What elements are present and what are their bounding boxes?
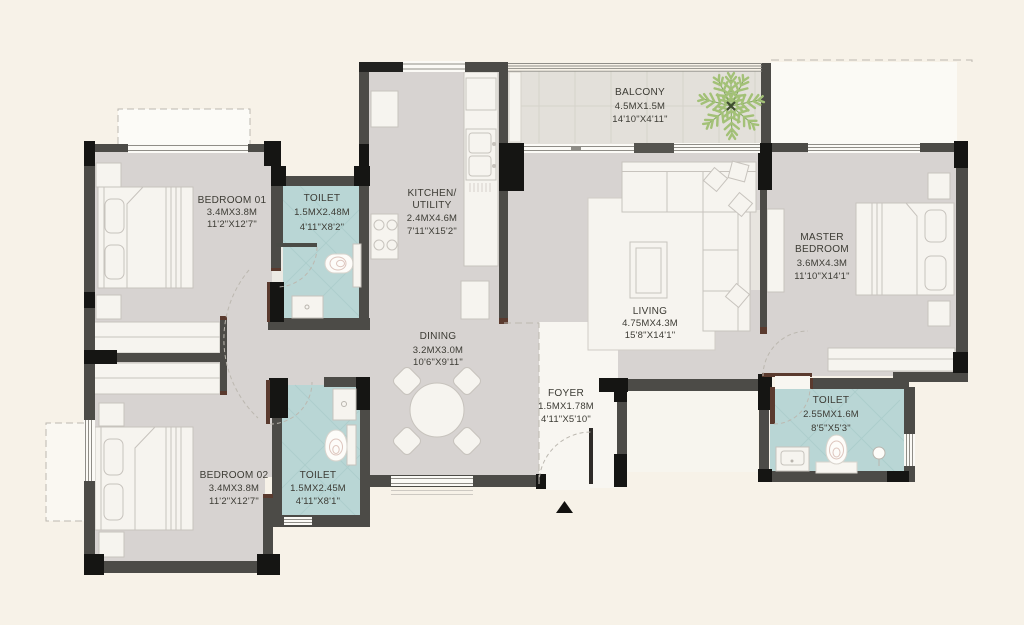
svg-text:4'11"X8'1": 4'11"X8'1" [296, 496, 340, 507]
svg-text:DINING: DINING [420, 331, 457, 342]
svg-text:14'10"X4'11": 14'10"X4'11" [612, 114, 667, 125]
svg-text:LIVING: LIVING [633, 306, 668, 317]
svg-text:1.5MX2.48M: 1.5MX2.48M [294, 207, 350, 218]
svg-text:BEDROOM 02: BEDROOM 02 [200, 470, 269, 481]
svg-text:1.5MX2.45M: 1.5MX2.45M [290, 483, 346, 494]
svg-text:11'2"X12'7": 11'2"X12'7" [209, 496, 259, 507]
svg-text:7'11"X15'2": 7'11"X15'2" [407, 226, 457, 237]
svg-text:10'6"X9'11": 10'6"X9'11" [413, 357, 463, 368]
svg-text:2.4MX4.6M: 2.4MX4.6M [407, 213, 457, 224]
svg-text:4'11"X5'10": 4'11"X5'10" [541, 414, 591, 425]
svg-text:3.4MX3.8M: 3.4MX3.8M [207, 207, 257, 218]
svg-text:15'8"X14'1": 15'8"X14'1" [625, 330, 676, 341]
svg-text:TOILET: TOILET [813, 395, 850, 406]
svg-text:BEDROOM: BEDROOM [795, 244, 849, 255]
svg-text:11'10"X14'1": 11'10"X14'1" [794, 271, 849, 282]
svg-text:3.4MX3.8M: 3.4MX3.8M [209, 483, 259, 494]
svg-text:TOILET: TOILET [300, 470, 337, 481]
svg-text:1.5MX1.78M: 1.5MX1.78M [538, 401, 594, 412]
svg-text:UTILITY: UTILITY [412, 200, 451, 211]
svg-text:KITCHEN/: KITCHEN/ [407, 188, 456, 199]
svg-text:8'5"X5'3": 8'5"X5'3" [811, 423, 851, 434]
svg-text:11'2"X12'7": 11'2"X12'7" [207, 219, 257, 230]
svg-text:3.2MX3.0M: 3.2MX3.0M [413, 345, 463, 356]
svg-text:MASTER: MASTER [800, 232, 844, 243]
svg-text:FOYER: FOYER [548, 388, 584, 399]
svg-text:4.75MX4.3M: 4.75MX4.3M [622, 318, 678, 329]
svg-text:BEDROOM 01: BEDROOM 01 [198, 195, 267, 206]
svg-text:3.6MX4.3M: 3.6MX4.3M [797, 258, 847, 269]
svg-text:2.55MX1.6M: 2.55MX1.6M [803, 409, 859, 420]
svg-text:4'11"X8'2": 4'11"X8'2" [300, 222, 344, 233]
svg-text:BALCONY: BALCONY [615, 87, 665, 98]
svg-text:4.5MX1.5M: 4.5MX1.5M [615, 101, 665, 112]
svg-text:TOILET: TOILET [304, 193, 341, 204]
